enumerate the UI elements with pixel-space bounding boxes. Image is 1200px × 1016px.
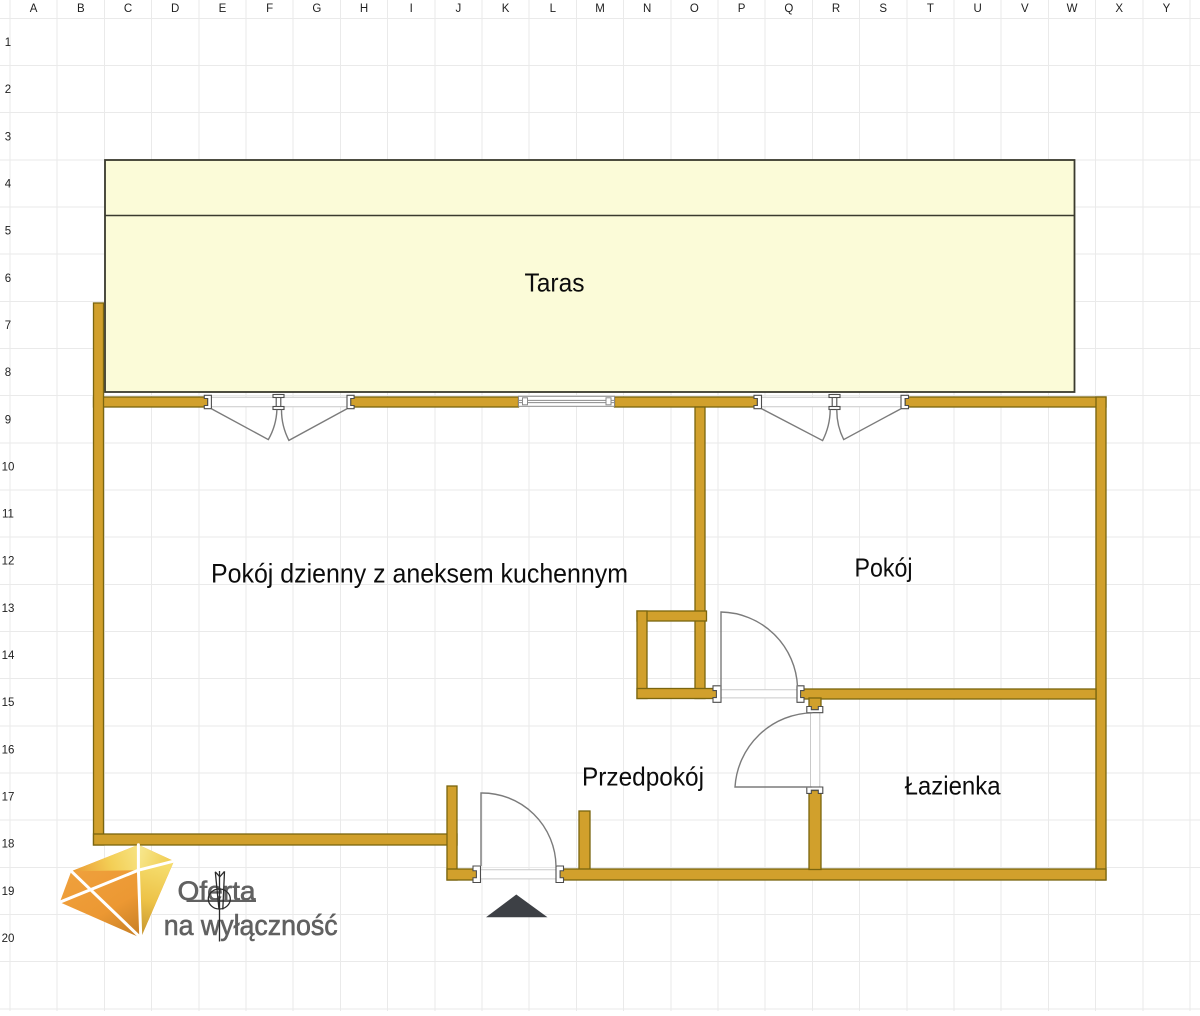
svg-text:Pokój: Pokój: [855, 552, 913, 582]
svg-text:F: F: [266, 3, 273, 15]
svg-text:2: 2: [5, 84, 11, 96]
svg-text:4: 4: [5, 179, 12, 191]
svg-text:L: L: [550, 3, 557, 15]
svg-text:5: 5: [5, 226, 11, 238]
svg-text:N: N: [643, 3, 651, 15]
svg-text:14: 14: [2, 650, 15, 662]
svg-text:12: 12: [2, 556, 15, 568]
svg-text:M: M: [595, 3, 605, 15]
svg-text:Q: Q: [784, 3, 793, 15]
svg-text:E: E: [219, 3, 227, 15]
svg-text:S: S: [879, 3, 887, 15]
svg-text:10: 10: [2, 461, 15, 473]
svg-text:18: 18: [2, 839, 15, 851]
svg-text:I: I: [410, 3, 413, 15]
svg-text:O: O: [690, 3, 699, 15]
svg-text:Łazienka: Łazienka: [905, 771, 1001, 801]
svg-text:H: H: [360, 3, 368, 15]
svg-text:C: C: [124, 3, 132, 15]
svg-text:R: R: [832, 3, 840, 15]
svg-text:T: T: [927, 3, 934, 15]
svg-text:B: B: [77, 3, 85, 15]
svg-text:9: 9: [5, 414, 11, 426]
svg-text:Taras: Taras: [525, 267, 585, 297]
svg-text:J: J: [456, 3, 462, 15]
svg-text:W: W: [1067, 3, 1078, 15]
svg-text:Y: Y: [1163, 3, 1171, 15]
svg-text:8: 8: [5, 367, 11, 379]
svg-text:V: V: [1021, 3, 1029, 15]
svg-text:19: 19: [2, 886, 15, 898]
svg-text:13: 13: [2, 603, 15, 615]
svg-text:na wyłączność: na wyłączność: [164, 910, 338, 942]
svg-text:17: 17: [2, 792, 15, 804]
svg-text:Pokój dzienny z aneksem kuchen: Pokój dzienny z aneksem kuchennym: [211, 558, 628, 588]
svg-text:D: D: [171, 3, 179, 15]
svg-text:20: 20: [2, 933, 15, 945]
svg-text:7: 7: [5, 320, 11, 332]
svg-text:U: U: [973, 3, 981, 15]
svg-text:Przedpokój: Przedpokój: [582, 761, 704, 791]
svg-text:P: P: [738, 3, 746, 15]
svg-text:3: 3: [5, 131, 11, 143]
svg-text:6: 6: [5, 273, 11, 285]
svg-text:11: 11: [2, 509, 14, 521]
svg-text:1: 1: [5, 37, 11, 49]
svg-text:15: 15: [2, 697, 15, 709]
svg-text:K: K: [502, 3, 510, 15]
svg-text:G: G: [312, 3, 321, 15]
svg-text:16: 16: [2, 744, 15, 756]
svg-text:X: X: [1115, 3, 1123, 15]
svg-text:A: A: [30, 3, 38, 15]
